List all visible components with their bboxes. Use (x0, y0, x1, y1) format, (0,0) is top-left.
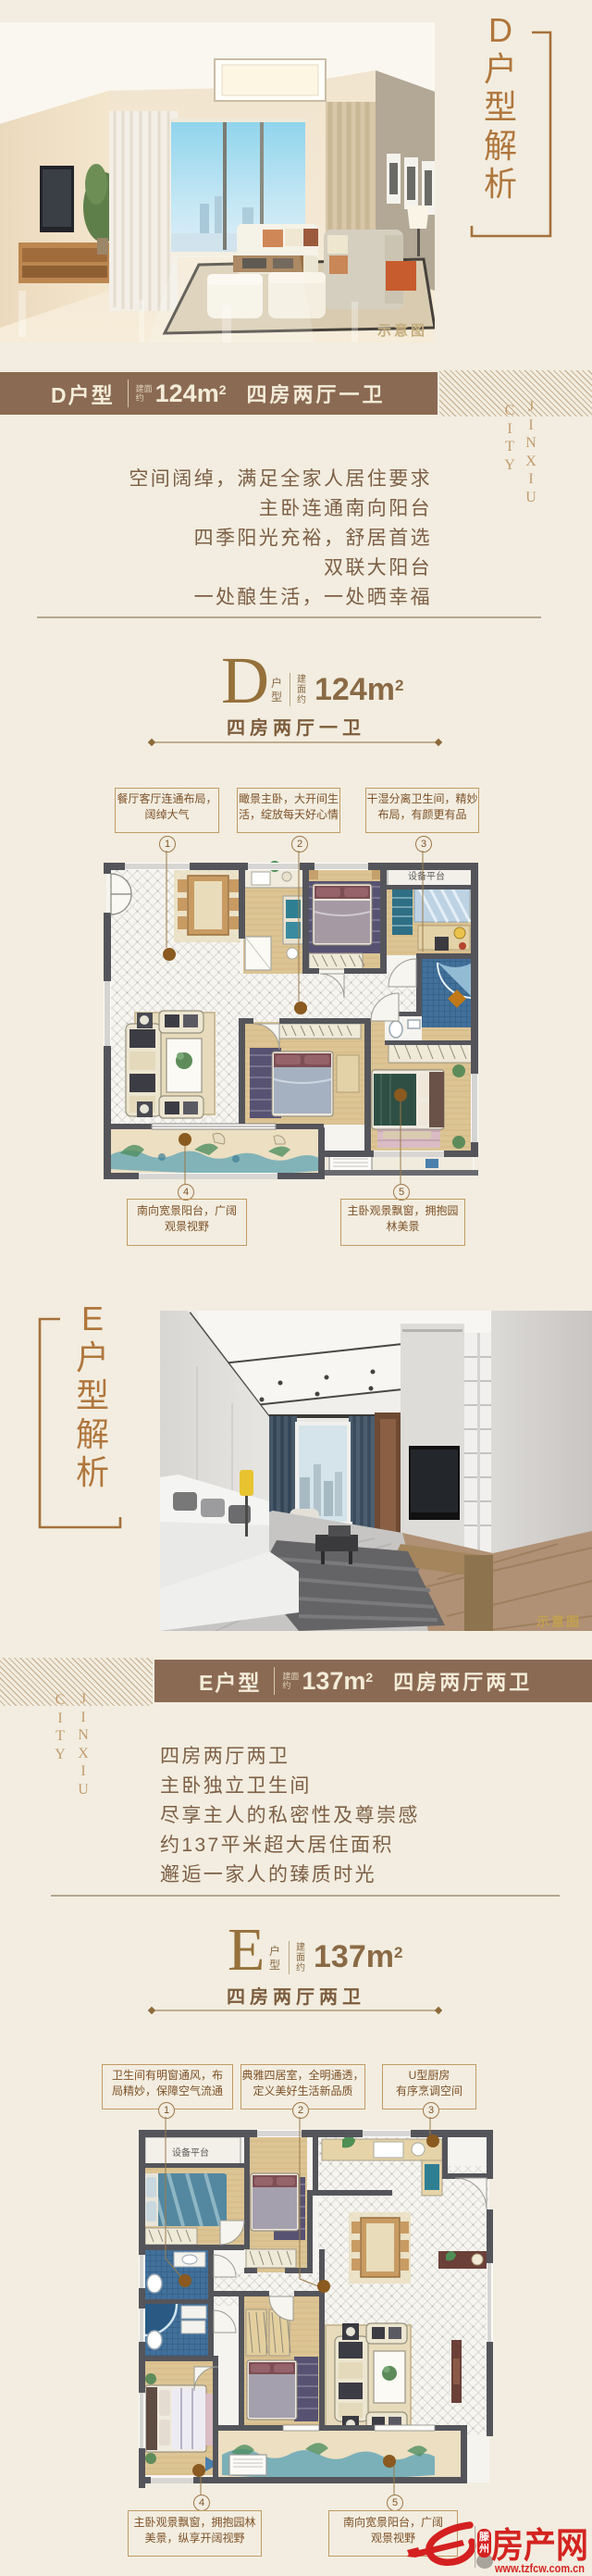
svg-text:示意图: 示意图 (536, 1614, 581, 1629)
svg-text:州: 州 (478, 2543, 489, 2555)
svg-text:示意图: 示意图 (377, 322, 427, 339)
svg-text:滕: 滕 (479, 2530, 490, 2543)
svg-text:www.tzfcw.com.cn: www.tzfcw.com.cn (494, 2561, 585, 2575)
svg-text:设备平台: 设备平台 (408, 870, 445, 882)
svg-text:设备平台: 设备平台 (172, 2147, 209, 2159)
svg-text:房产网: 房产网 (491, 2527, 588, 2566)
